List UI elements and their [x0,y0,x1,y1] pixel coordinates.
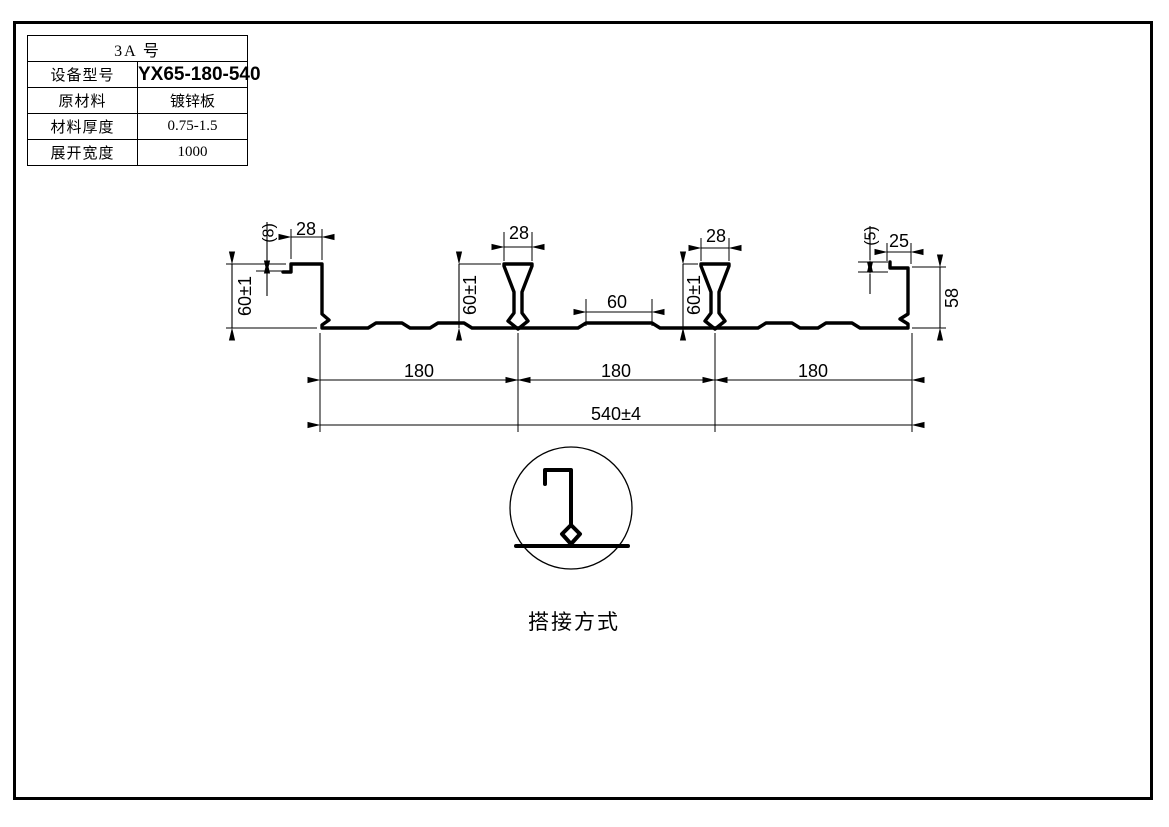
dim-right-height: 58 [942,288,962,308]
ext-line [858,262,888,272]
detail-hook [545,470,571,525]
dim-rib1-height: 60±1 [460,275,480,315]
profile-sheet-path [283,262,908,328]
dim-rib2-height: 60±1 [684,275,704,315]
dim-seg1: 180 [404,361,434,381]
dim-left-lip: (8) [261,223,278,243]
dim-right-flange: 25 [889,231,909,251]
ext-line [912,267,946,328]
profile-outline [283,262,908,329]
dim-rib2-width: 28 [706,226,726,246]
dim-rib1-width: 28 [509,223,529,243]
dim-seg2: 180 [601,361,631,381]
rib-1 [504,264,532,329]
dim-seg3: 180 [798,361,828,381]
lap-joint-detail: 搭接方式 [510,447,632,634]
detail-caption: 搭接方式 [528,610,620,634]
dim-overall: 540±4 [591,404,641,424]
detail-diamond [562,525,580,544]
dim-mid-emboss: 60 [607,292,627,312]
rib-2 [701,264,729,329]
dim-left-height: 60±1 [235,276,255,316]
dim-left-flange: 28 [296,219,316,239]
dim-right-lip: (5) [863,226,880,246]
profile-drawing: 28 (8) 60±1 28 60±1 28 60±1 60 (5) 25 58… [0,0,1169,827]
